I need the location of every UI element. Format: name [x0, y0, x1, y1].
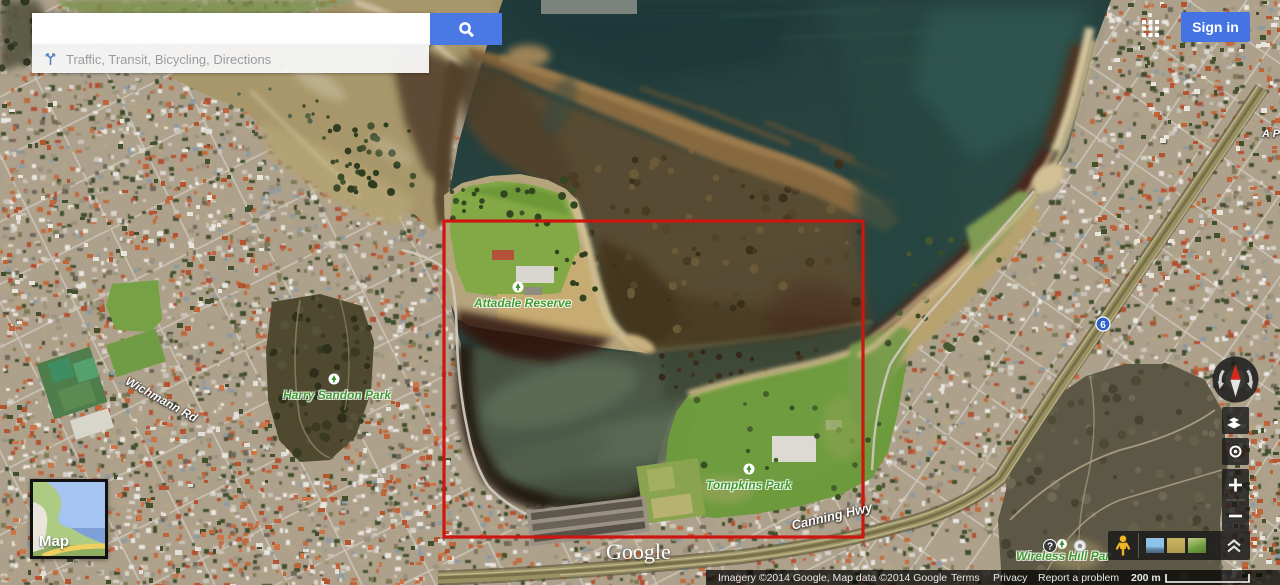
- svg-text:6: 6: [1100, 320, 1106, 331]
- svg-text:?: ?: [1047, 542, 1053, 553]
